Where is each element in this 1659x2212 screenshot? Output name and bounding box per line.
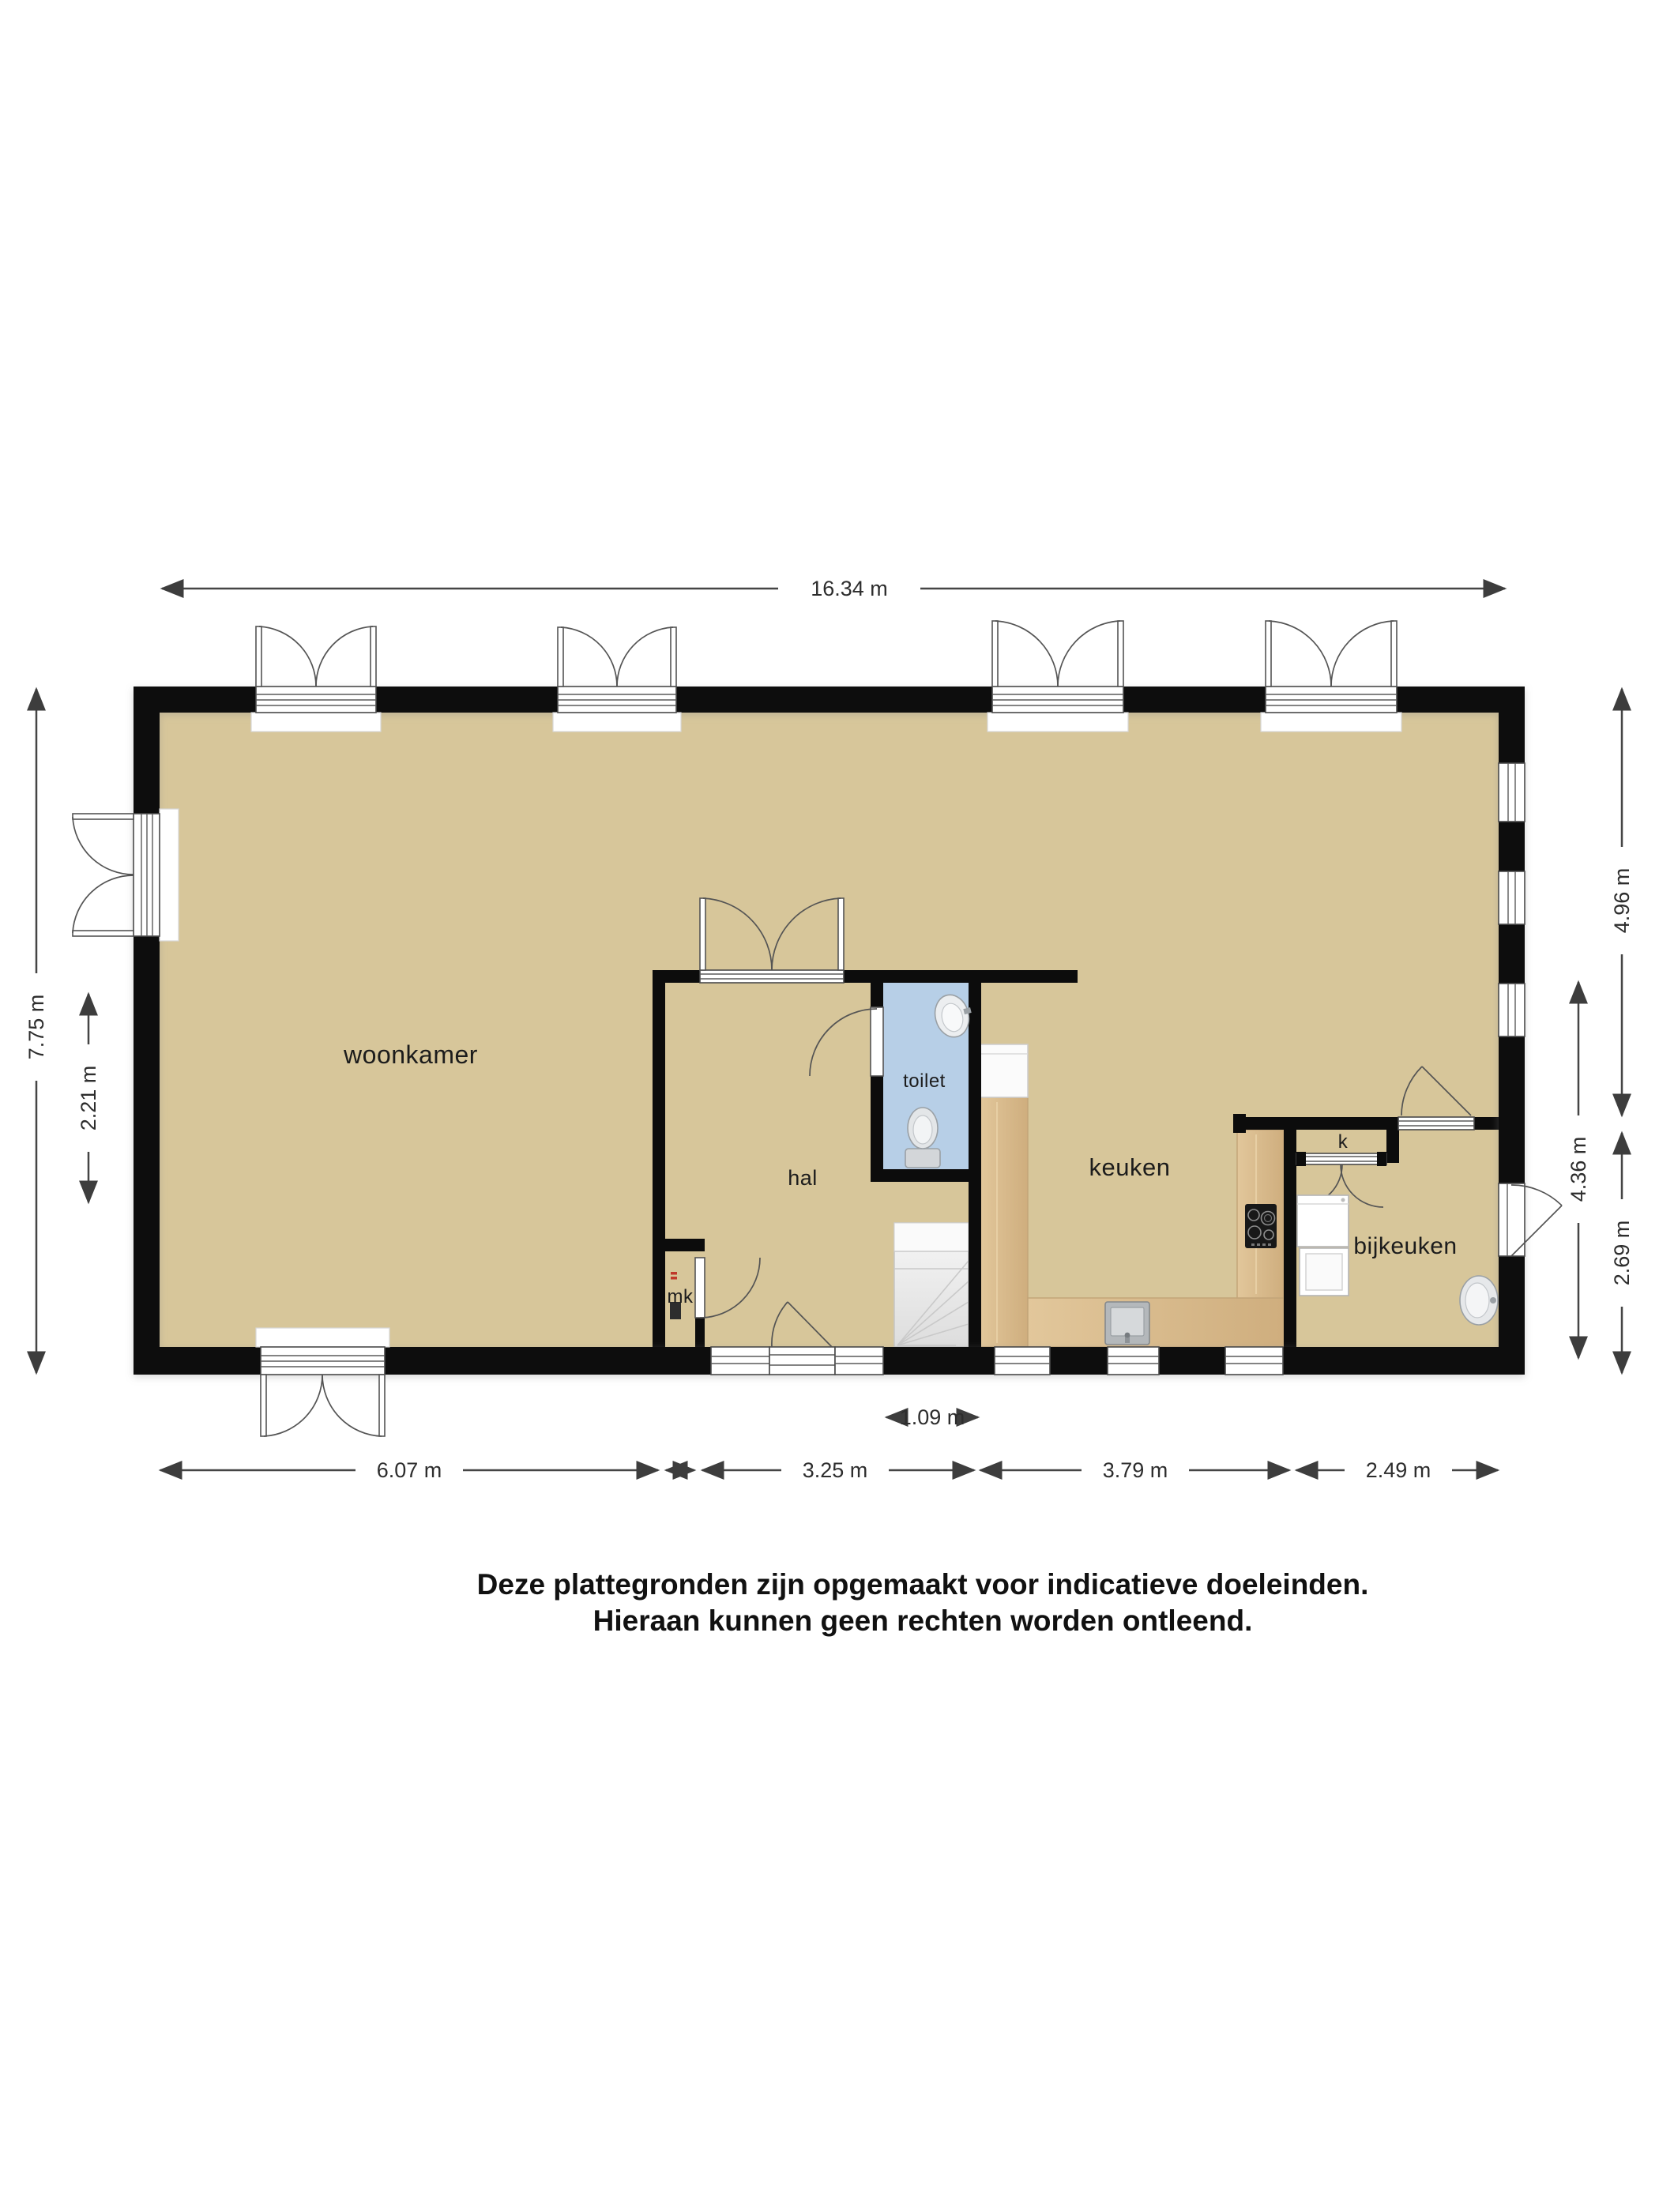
dim-bottom-2: 3.25 m: [702, 1457, 974, 1484]
wall-bijkeuken-north: [1233, 1117, 1398, 1130]
dim-left-inner: 2.21 m: [75, 994, 102, 1202]
wall-mk-east-low: [695, 1318, 705, 1347]
wall-toilet-south: [871, 1169, 981, 1182]
svg-text:2.69 m: 2.69 m: [1610, 1221, 1634, 1286]
dim-right-bottom: 2.69 m: [1608, 1133, 1635, 1373]
svg-text:3.79 m: 3.79 m: [1103, 1458, 1168, 1482]
dim-bottom-3: 3.79 m: [980, 1457, 1289, 1484]
dim-total-height: 7.75 m: [23, 689, 50, 1373]
dim-right-top: 4.96 m: [1608, 689, 1635, 1115]
disclaimer-line1: Deze plattegronden zijn opgemaakt voor i…: [477, 1568, 1369, 1601]
counter-south: [1028, 1298, 1284, 1347]
french-door-icon: [1261, 621, 1401, 732]
svg-text:7.75 m: 7.75 m: [24, 995, 48, 1060]
floor-plan-page: woonkamer hal toilet keuken bijkeuken k …: [0, 0, 1659, 2212]
svg-text:2.49 m: 2.49 m: [1366, 1458, 1431, 1482]
stairs-icon: [894, 1223, 969, 1347]
label-mk: mk: [668, 1286, 694, 1307]
label-closet-k: k: [1338, 1131, 1349, 1153]
label-hal: hal: [788, 1166, 818, 1190]
french-door-icon: [256, 1328, 389, 1436]
svg-text:3.25 m: 3.25 m: [803, 1458, 868, 1482]
window-icon: [995, 1347, 1050, 1375]
dim-bottom-4: 2.49 m: [1296, 1457, 1498, 1484]
svg-text:4.36 m: 4.36 m: [1567, 1137, 1590, 1202]
utility-sink-icon: [1460, 1276, 1498, 1325]
disclaimer-line2: Hieraan kunnen geen rechten worden ontle…: [593, 1604, 1253, 1637]
svg-text:16.34 m: 16.34 m: [811, 577, 888, 600]
label-woonkamer: woonkamer: [343, 1040, 478, 1069]
window-icon: [711, 1347, 769, 1375]
label-bijkeuken: bijkeuken: [1353, 1233, 1457, 1259]
back-door-icon: [1499, 1183, 1562, 1256]
french-door-icon: [251, 626, 381, 732]
svg-text:1.09 m: 1.09 m: [900, 1405, 965, 1429]
window-icon: [1499, 871, 1525, 924]
french-door-icon: [553, 627, 681, 732]
window-icon: [1225, 1347, 1283, 1375]
dim-total-width: 16.34 m: [162, 575, 1505, 602]
svg-text:4.96 m: 4.96 m: [1610, 868, 1634, 934]
counter-cabinet-white: [980, 1044, 1028, 1097]
wall-hal-woonkamer: [653, 970, 665, 1347]
window-icon: [1499, 984, 1525, 1036]
wall-mk-top: [653, 1239, 705, 1251]
svg-text:6.07 m: 6.07 m: [377, 1458, 442, 1482]
svg-text:2.21 m: 2.21 m: [77, 1066, 100, 1131]
disclaimer: Deze plattegronden zijn opgemaakt voor i…: [477, 1568, 1369, 1637]
wall-hal-top-west: [653, 970, 700, 983]
wall-west: [134, 687, 160, 1375]
window-icon: [835, 1347, 883, 1375]
window-icon: [1499, 763, 1525, 822]
counter-west: [980, 1097, 1028, 1347]
floor-plan-canvas: woonkamer hal toilet keuken bijkeuken k …: [0, 0, 1659, 2212]
kitchen-sink-icon: [1105, 1302, 1149, 1345]
washer-icon: [1297, 1195, 1349, 1247]
wall-closet-east: [1386, 1130, 1399, 1163]
label-toilet: toilet: [903, 1070, 946, 1092]
wall-bijkeuken-north-east: [1474, 1117, 1499, 1130]
french-door-icon: [987, 621, 1128, 732]
toilet-bowl-icon: [905, 1108, 940, 1168]
west-french-door-icon: [73, 809, 179, 941]
label-keuken: keuken: [1089, 1153, 1171, 1181]
dim-right-middle: 4.36 m: [1565, 982, 1592, 1358]
wall-keuken-bijkeuken: [1284, 1117, 1296, 1347]
cooktop-icon: [1245, 1204, 1277, 1248]
dim-toilet-width: 1.09 m: [886, 1405, 978, 1429]
dim-bottom-1: 6.07 m: [160, 1457, 658, 1484]
dryer-icon: [1300, 1248, 1349, 1296]
window-icon: [1108, 1347, 1159, 1375]
wall-stairwell: [969, 970, 981, 1347]
